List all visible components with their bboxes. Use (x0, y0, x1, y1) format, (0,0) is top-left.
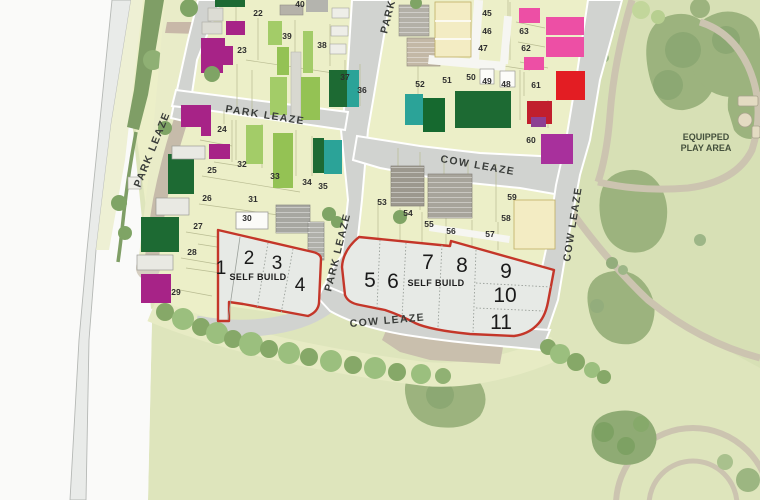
svg-text:22: 22 (253, 8, 263, 18)
svg-text:37: 37 (340, 72, 350, 82)
svg-text:35: 35 (318, 181, 328, 191)
svg-text:2: 2 (244, 248, 255, 269)
svg-text:46: 46 (482, 26, 492, 36)
svg-text:55: 55 (424, 219, 434, 229)
svg-text:39: 39 (282, 31, 292, 41)
svg-text:27: 27 (193, 221, 203, 231)
svg-text:47: 47 (478, 43, 488, 53)
svg-text:6: 6 (387, 270, 399, 293)
svg-text:23: 23 (237, 45, 247, 55)
svg-text:50: 50 (466, 72, 476, 82)
svg-text:53: 53 (377, 197, 387, 207)
svg-text:36: 36 (357, 85, 367, 95)
svg-text:48: 48 (501, 79, 511, 89)
svg-text:61: 61 (531, 80, 541, 90)
svg-text:5: 5 (364, 269, 376, 292)
svg-text:SELF BUILD: SELF BUILD (230, 272, 287, 282)
svg-text:4: 4 (295, 275, 306, 296)
svg-text:10: 10 (493, 284, 516, 307)
svg-text:40: 40 (295, 0, 305, 9)
svg-text:SELF BUILD: SELF BUILD (408, 278, 465, 288)
svg-text:38: 38 (317, 40, 327, 50)
svg-text:24: 24 (217, 124, 227, 134)
svg-text:33: 33 (270, 171, 280, 181)
svg-text:32: 32 (237, 159, 247, 169)
svg-text:9: 9 (500, 260, 512, 283)
svg-text:29: 29 (171, 287, 181, 297)
svg-text:28: 28 (187, 247, 197, 257)
svg-text:57: 57 (485, 229, 495, 239)
svg-text:58: 58 (501, 213, 511, 223)
svg-text:59: 59 (507, 192, 517, 202)
svg-text:52: 52 (415, 79, 425, 89)
svg-text:PLAY AREA: PLAY AREA (681, 143, 732, 153)
svg-text:51: 51 (442, 75, 452, 85)
svg-text:62: 62 (521, 43, 531, 53)
svg-text:49: 49 (482, 76, 492, 86)
svg-text:31: 31 (248, 194, 258, 204)
svg-text:3: 3 (272, 253, 283, 274)
svg-text:26: 26 (202, 193, 212, 203)
svg-text:60: 60 (526, 135, 536, 145)
svg-text:25: 25 (207, 165, 217, 175)
svg-text:EQUIPPED: EQUIPPED (683, 132, 730, 142)
svg-text:34: 34 (302, 177, 312, 187)
svg-text:54: 54 (403, 208, 413, 218)
svg-text:8: 8 (456, 254, 468, 277)
svg-text:45: 45 (482, 8, 492, 18)
svg-text:63: 63 (519, 26, 529, 36)
svg-text:1: 1 (216, 258, 227, 279)
svg-text:7: 7 (422, 251, 434, 274)
svg-text:11: 11 (490, 311, 512, 334)
svg-text:30: 30 (242, 213, 252, 223)
svg-text:56: 56 (446, 226, 456, 236)
